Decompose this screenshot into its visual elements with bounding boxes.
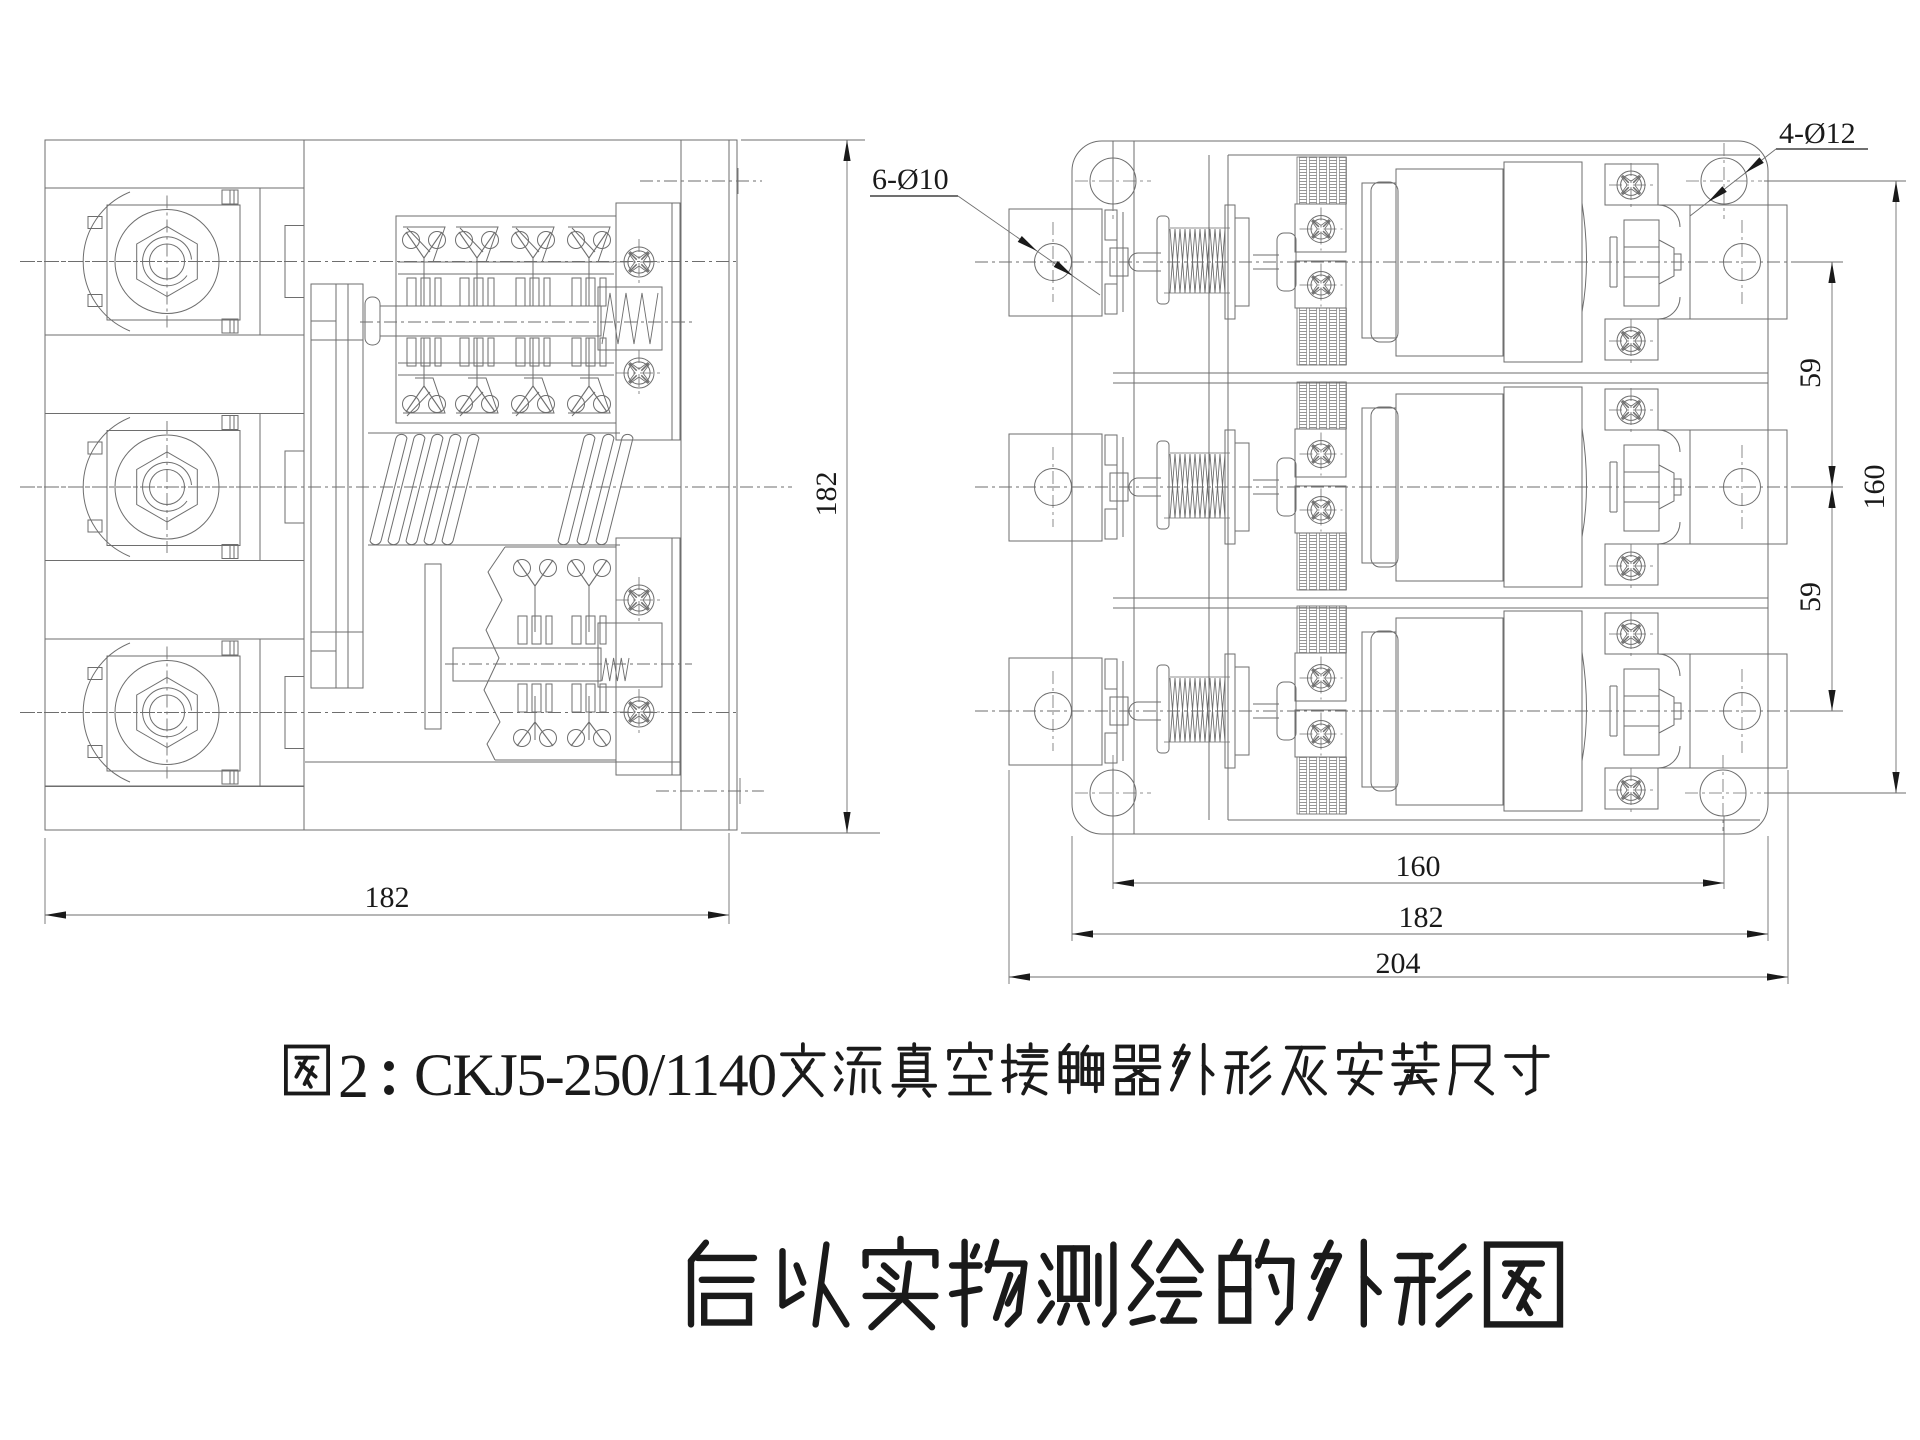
svg-text:6-Ø10: 6-Ø10 <box>872 163 949 196</box>
svg-text:59: 59 <box>1794 358 1827 388</box>
svg-text:182: 182 <box>810 472 843 517</box>
svg-text:182: 182 <box>1399 901 1444 934</box>
svg-text:160: 160 <box>1858 465 1891 510</box>
svg-text:59: 59 <box>1794 582 1827 612</box>
svg-text:4-Ø12: 4-Ø12 <box>1779 117 1856 150</box>
svg-text:204: 204 <box>1376 947 1421 980</box>
svg-text:182: 182 <box>365 881 410 914</box>
svg-text:160: 160 <box>1396 850 1441 883</box>
svg-text:2: 2 <box>338 1043 369 1111</box>
svg-text:CKJ5-250/1140: CKJ5-250/1140 <box>414 1042 776 1108</box>
